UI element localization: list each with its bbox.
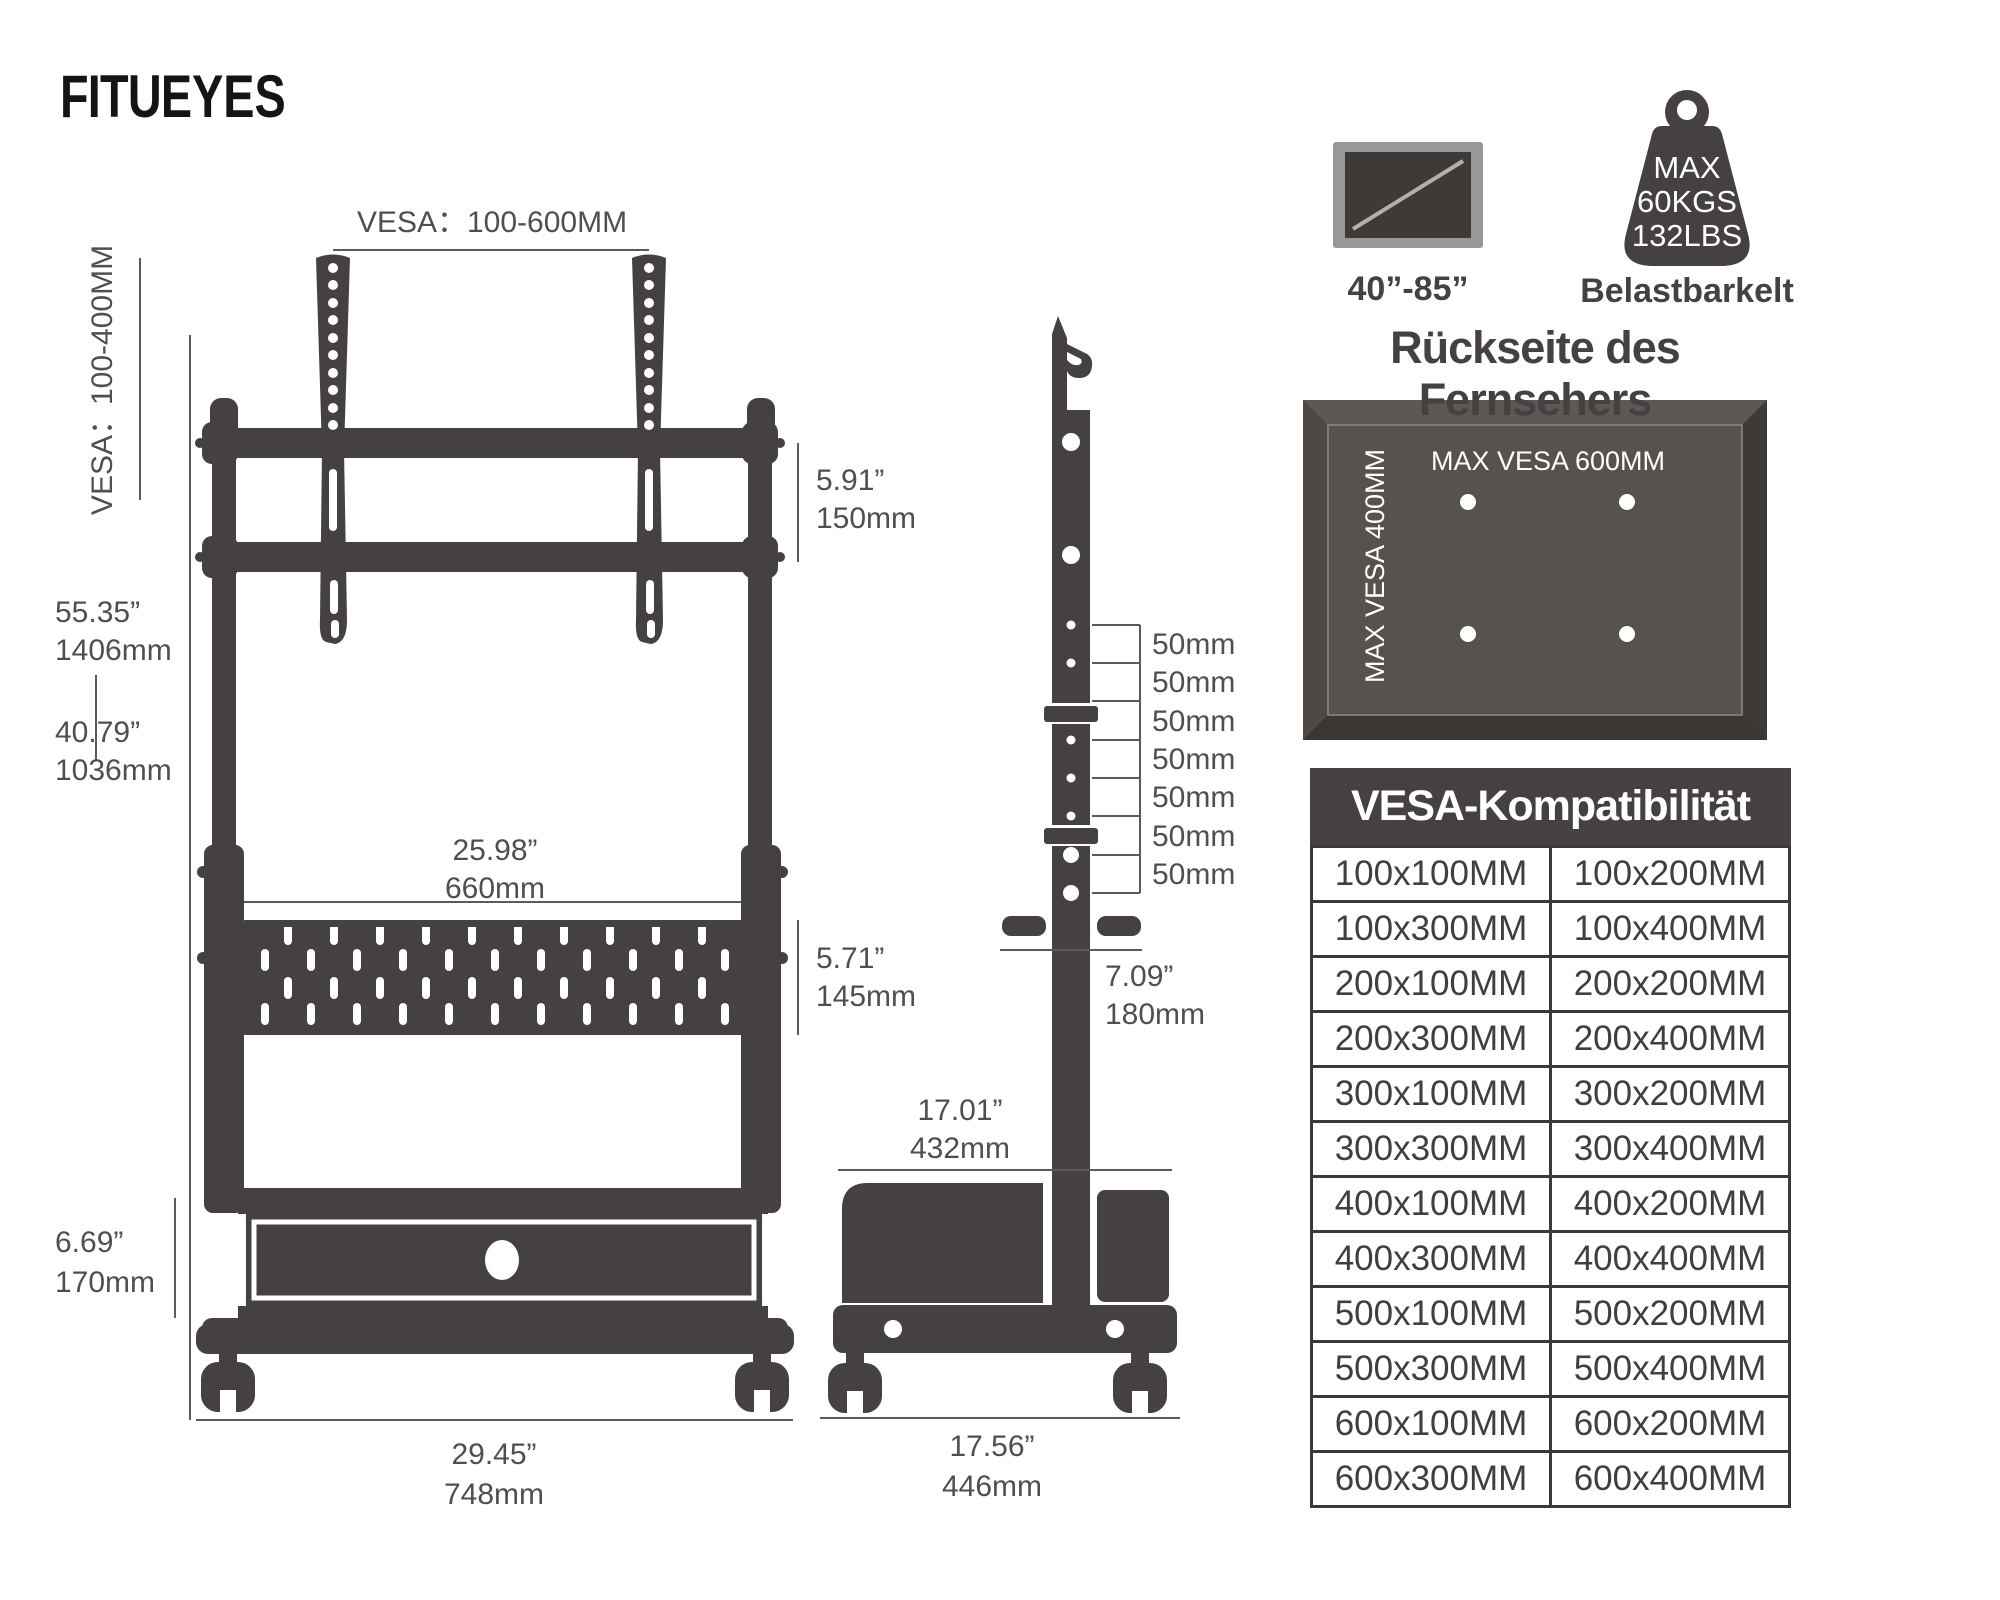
vesa-size-cell: 100x300MM [1312,902,1551,957]
vesa-size-cell: 100x100MM [1312,847,1551,902]
caster-wheel [201,1352,255,1414]
label-depth-mm: 180mm [1105,998,1205,1031]
vesa-size-cell: 600x100MM [1312,1397,1551,1452]
label-weight-max: MAX [1653,150,1721,185]
table-row: 200x100MM 200x200MM [1312,957,1790,1012]
vesa-size-cell: 600x200MM [1551,1397,1790,1452]
vesa-size-cell: 400x300MM [1312,1232,1551,1287]
table-row: 300x100MM 300x200MM [1312,1067,1790,1122]
brand-logo-eyes: EYES [161,63,286,130]
vesa-hole [1619,626,1635,642]
table-row: 400x300MM 400x400MM [1312,1232,1790,1287]
vesa-size-cell: 300x200MM [1551,1067,1790,1122]
vesa-size-cell: 200x400MM [1551,1012,1790,1067]
vesa-size-cell: 300x400MM [1551,1122,1790,1177]
vesa-size-cell: 500x200MM [1551,1287,1790,1342]
hook-curl [1067,344,1092,378]
front-view: VESA：100-600MM VESA：100-400MM 55.35” 140… [55,206,916,1511]
hook-blade [1052,316,1067,412]
vesa-size-cell: 400x400MM [1551,1232,1790,1287]
label-drawer-mm: 170mm [55,1266,155,1299]
table-row: 100x100MM 100x200MM [1312,847,1790,902]
drawer-knob-hole [485,1240,519,1280]
vesa-size-cell: 300x300MM [1312,1122,1551,1177]
vesa-size-cell: 400x100MM [1312,1177,1551,1232]
table-row: 400x100MM 400x200MM [1312,1177,1790,1232]
label-depth-in: 7.09” [1105,960,1173,993]
shelf-perforation [247,927,743,1028]
label-bracket-mm: 150mm [816,502,916,535]
vesa-size-cell: 500x100MM [1312,1287,1551,1342]
label-mid-height-mm: 1036mm [55,754,172,787]
label-increment: 50mm [1152,628,1235,661]
caster-wheel [735,1352,789,1414]
base-plate-front [196,1324,794,1354]
lower-crossbar [205,542,775,572]
table-row: 300x300MM 300x400MM [1312,1122,1790,1177]
table-row: 600x100MM 600x200MM [1312,1397,1790,1452]
left-sleeve [204,845,244,1213]
table-row: 600x300MM 600x400MM [1312,1452,1790,1507]
brand-logo: FITUEYES [60,62,286,131]
increment-ladder: 50mm 50mm 50mm 50mm 50mm 50mm 50mm [1092,625,1235,893]
label-vesa-top: VESA：100-600MM [357,206,627,239]
vesa-hole [1460,626,1476,642]
spec-sheet: VESA：100-600MM VESA：100-400MM 55.35” 140… [0,0,2000,1600]
label-total-height-in: 55.35” [55,596,140,629]
label-weight-caption: Belastbarkelt [1580,272,1794,310]
vesa-size-cell: 400x200MM [1551,1177,1790,1232]
vesa-size-cell: 200x100MM [1312,957,1551,1012]
label-weight-kg: 60KGS [1637,184,1737,219]
vesa-size-cell: 200x200MM [1551,957,1790,1012]
side-pole-lower [1052,846,1090,1308]
table-row: 100x300MM 100x400MM [1312,902,1790,957]
side-cabinet-back [1097,1190,1169,1302]
caster-wheel [1113,1353,1167,1415]
table-row: 200x300MM 200x400MM [1312,1012,1790,1067]
caster-wheel [828,1353,882,1415]
label-bracket-in: 5.91” [816,464,884,497]
shelf-bracket [1097,916,1141,936]
shelf-bracket [1002,916,1046,936]
tv-back-title: Rückseite des Fernsehers [1285,322,1785,426]
weight-capacity-badge: MAX 60KGS 132LBS Belastbarkelt [1580,90,1794,310]
label-inner-depth-mm: 432mm [910,1132,1010,1165]
side-cabinet [842,1183,1043,1303]
label-shelf-height-mm: 145mm [816,980,916,1013]
adjust-collar [1044,828,1098,844]
vesa-compatibility-table: VESA-Kompatibilität 100x100MM 100x200MM … [1310,768,1791,1508]
vesa-size-cell: 500x400MM [1551,1342,1790,1397]
vesa-hole [1460,494,1476,510]
label-shelf-height-in: 5.71” [816,942,884,975]
brand-logo-fitu: FITU [60,63,161,130]
label-base-width-in: 29.45” [451,1438,536,1471]
label-mid-height-in: 40.79” [55,716,140,749]
label-drawer-in: 6.69” [55,1226,123,1259]
vesa-size-cell: 300x100MM [1312,1067,1551,1122]
label-increment: 50mm [1152,820,1235,853]
vesa-table-title: VESA-Kompatibilität [1310,768,1791,845]
label-vesa-left: VESA：100-400MM [86,245,119,515]
label-total-height-mm: 1406mm [55,634,172,667]
vesa-size-cell: 200x300MM [1312,1012,1551,1067]
vesa-size-cell: 600x300MM [1312,1452,1551,1507]
vesa-size-cell: 600x400MM [1551,1452,1790,1507]
vesa-size-cell: 100x200MM [1551,847,1790,902]
label-weight-lbs: 132LBS [1632,218,1742,253]
label-shelf-width-mm: 660mm [445,872,545,905]
label-max-vesa-height: MAX VESA 400MM [1360,449,1390,683]
screen-size-badge: 40”-85” [1333,142,1483,308]
label-screen-range: 40”-85” [1348,270,1469,308]
cabinet-top [238,1188,768,1214]
label-max-vesa-width: MAX VESA 600MM [1431,446,1665,476]
adjust-collar [1044,706,1098,722]
top-crossbar [205,428,775,458]
label-increment: 50mm [1152,743,1235,776]
table-row: 500x300MM 500x400MM [1312,1342,1790,1397]
table-row: 500x100MM 500x200MM [1312,1287,1790,1342]
tv-back-panel: MAX VESA 600MM MAX VESA 400MM [1303,400,1767,740]
label-shelf-width-in: 25.98” [452,834,537,867]
label-base-width-mm: 748mm [444,1478,544,1511]
label-base-depth-in: 17.56” [949,1430,1034,1463]
label-base-depth-mm: 446mm [942,1470,1042,1503]
label-increment: 50mm [1152,858,1235,891]
vesa-size-cell: 100x400MM [1551,902,1790,957]
vesa-hole [1619,494,1635,510]
label-increment: 50mm [1152,781,1235,814]
label-inner-depth-in: 17.01” [917,1094,1002,1127]
label-increment: 50mm [1152,705,1235,738]
label-increment: 50mm [1152,666,1235,699]
vesa-size-cell: 500x300MM [1312,1342,1551,1397]
